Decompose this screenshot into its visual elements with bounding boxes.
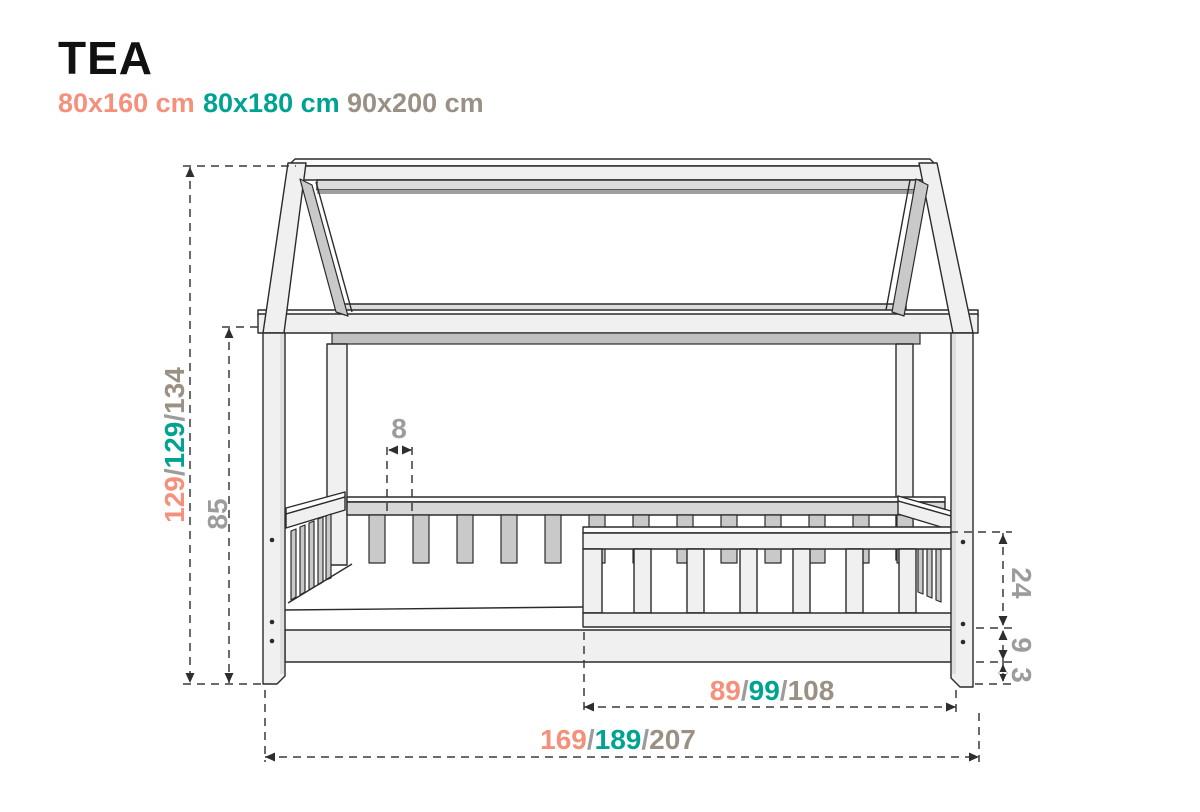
front-right-post [951,333,973,687]
roof-ridge [288,159,937,194]
dim-total-length: 169/189/207 [540,724,696,755]
front-left-post [263,333,285,684]
bed-diagram-canvas: TEA 80x160 cm 80x180 cm 90x200 cm [0,0,1200,812]
size-option-80x180: 80x180 cm [203,88,340,118]
bed-drawing [258,159,978,687]
dim-total-height: 129/129/134 [159,367,190,523]
size-option-90x200: 90x200 cm [347,88,484,118]
product-dimension-sheet: TEA 80x160 cm 80x180 cm 90x200 cm [0,0,1200,812]
page-title: TEA [58,32,153,84]
size-option-80x160: 80x160 cm [58,88,195,118]
dimension-arrowheads [186,167,1008,762]
eave-beams [258,304,978,344]
dim-wall-height: 85 [202,498,233,529]
dim-guard-rail-length: 89/99/108 [710,675,835,706]
front-guard-rail [583,527,952,627]
dim-base-height: 9 [1006,637,1037,653]
size-options: 80x160 cm 80x180 cm 90x200 cm [58,88,484,118]
dim-foot-height: 3 [1006,667,1037,683]
dim-guard-rail-height: 24 [1006,567,1037,599]
dimension-lines [183,166,1012,762]
base-side-rail [285,630,951,662]
dim-slat-gap: 8 [391,413,407,444]
